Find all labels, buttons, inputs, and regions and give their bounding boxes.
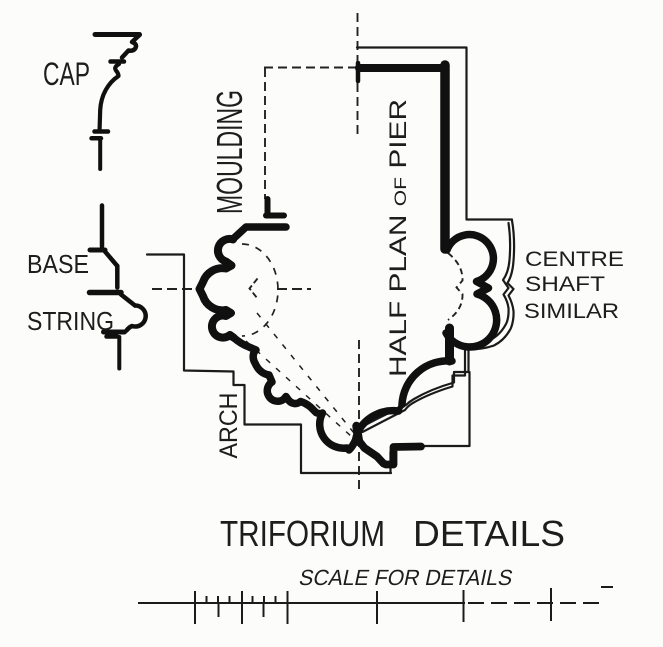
svg-text:ARCH: ARCH [215,393,243,459]
svg-text:CENTRE: CENTRE [525,247,624,271]
svg-text:DETAILS: DETAILS [413,513,565,554]
svg-text:MOULDING: MOULDING [209,90,250,214]
svg-text:STRING: STRING [27,306,114,336]
svg-text:SCALE FOR DETAILS: SCALE FOR DETAILS [297,565,515,590]
svg-text:TRIFORIUM: TRIFORIUM [220,513,385,554]
svg-text:SHAFT: SHAFT [525,272,605,296]
svg-text:BASE: BASE [27,249,89,279]
svg-text:SIMILAR: SIMILAR [524,299,619,323]
svg-text:CAP: CAP [43,56,90,92]
svg-text:HALF PLAN OF PIER: HALF PLAN OF PIER [385,99,412,377]
